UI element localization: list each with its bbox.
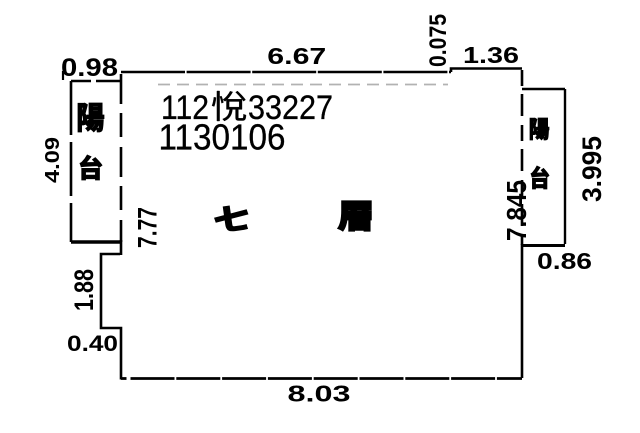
svg-text:0.86: 0.86 xyxy=(537,248,592,274)
svg-text:4.09: 4.09 xyxy=(41,137,64,183)
svg-text:1130106: 1130106 xyxy=(159,117,286,158)
svg-text:0.98: 0.98 xyxy=(61,54,118,82)
svg-text:3.995: 3.995 xyxy=(577,136,607,202)
svg-text:1.36: 1.36 xyxy=(463,42,519,68)
svg-text:7.845: 7.845 xyxy=(501,180,532,241)
svg-text:1.88: 1.88 xyxy=(69,269,99,311)
svg-text:6.67: 6.67 xyxy=(267,43,326,69)
svg-text:0.40: 0.40 xyxy=(67,331,118,356)
svg-text:7.77: 7.77 xyxy=(133,207,163,248)
svg-text:0.075: 0.075 xyxy=(425,14,452,67)
svg-text:8.03: 8.03 xyxy=(288,381,351,407)
